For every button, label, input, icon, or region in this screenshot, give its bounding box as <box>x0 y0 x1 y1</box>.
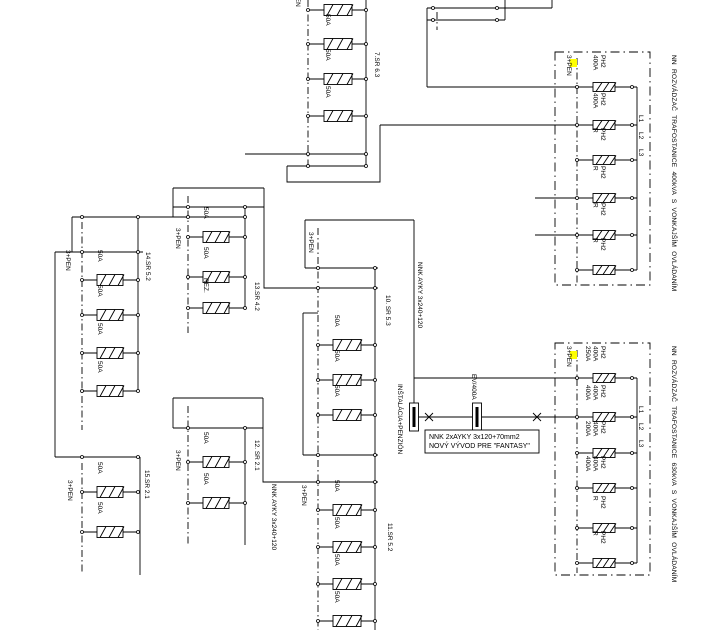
group-10sr-label: 10. SR 5.3 <box>384 295 391 326</box>
connection-node <box>576 416 579 419</box>
note-text: NNK 2xAYKY 3x120+70mm2 <box>429 434 520 441</box>
board-630kva-phase-label: L2 <box>637 423 644 431</box>
group-14sr-fuse-rating: 50A <box>96 285 103 297</box>
connection-node <box>432 19 435 22</box>
group-11sr-label: 11.SR 5.2 <box>386 523 393 552</box>
group-14sr-pen-label: 3+PEN <box>64 250 71 271</box>
connection-node <box>81 314 84 317</box>
group-10sr-pen-label: 3+PEN <box>307 232 314 253</box>
connection-node <box>317 379 320 382</box>
connection-node <box>317 267 320 270</box>
connection-node <box>244 216 247 219</box>
connection-node <box>187 427 190 430</box>
connection-node <box>317 583 320 586</box>
connection-node <box>187 307 190 310</box>
connection-node <box>365 165 368 168</box>
group-7sr-pen-label: 3+PEN <box>294 0 301 7</box>
connection-node <box>137 390 140 393</box>
connection-node <box>374 583 377 586</box>
group-10sr-fuse-rating: 50A <box>333 350 340 362</box>
connection-node <box>81 390 84 393</box>
connection-node <box>576 562 579 565</box>
connection-node <box>307 165 310 168</box>
cable-label-nnk-ayky-1: NNK AYKY 3x240+120 <box>416 262 423 328</box>
connection-node <box>317 414 320 417</box>
group-15sr-pen-label: 3+PEN <box>66 480 73 501</box>
connection-node <box>432 7 435 10</box>
connection-node <box>187 276 190 279</box>
note-text: NOVÝ VÝVOD PRE "FANTASY" <box>429 441 530 450</box>
connection-node <box>365 9 368 12</box>
group-14sr-fuse-rating: 50A <box>96 250 103 262</box>
connection-node <box>187 206 190 209</box>
connection-node <box>137 531 140 534</box>
connection-node <box>81 352 84 355</box>
board-630kva-phase-label: L3 <box>637 440 644 448</box>
connection-node <box>244 502 247 505</box>
group-12sr-fuse-rating: 50A <box>202 473 209 485</box>
connection-node <box>187 216 190 219</box>
connection-node <box>187 236 190 239</box>
connection-node <box>365 78 368 81</box>
board-400kva-phase-label: L3 <box>637 149 644 157</box>
group-7sr-label: 7.SR 6.3 <box>373 52 380 78</box>
connection-node <box>576 377 579 380</box>
group-14sr-label: 14.SR 5.2 <box>144 252 151 281</box>
connection-node <box>631 234 634 237</box>
group-13sr-fuse-rating: 50A <box>202 207 209 219</box>
connection-node <box>374 267 377 270</box>
connection-node <box>631 197 634 200</box>
connection-node <box>576 452 579 455</box>
group-13sr-fuse-rating: REZ. <box>202 278 209 293</box>
connection-node <box>244 276 247 279</box>
connection-node <box>81 216 84 219</box>
connection-node <box>374 287 377 290</box>
connection-node <box>576 86 579 89</box>
connection-node <box>576 269 579 272</box>
connection-node <box>307 9 310 12</box>
group-7sr-fuse-rating: 50A <box>324 49 331 61</box>
board-400kva-title: NN ROZVÁDZAČ TRAFOSTANICE 400kVA S VONKA… <box>670 55 679 291</box>
connection-node <box>137 216 140 219</box>
cable-label-nnk-ayky-2: NNK AYKY 3x240+120 <box>270 484 277 550</box>
connection-node <box>317 546 320 549</box>
connection-node <box>137 352 140 355</box>
electrical-single-line-diagram: NNK 2xAYKY 3x120+70mm2NOVÝ VÝVOD PRE "FA… <box>0 0 726 630</box>
group-15sr-fuse-rating: 50A <box>96 502 103 514</box>
connection-node <box>631 452 634 455</box>
connection-node <box>81 531 84 534</box>
board-630kva-phase-label: L1 <box>637 406 644 414</box>
connection-node <box>631 527 634 530</box>
connection-node <box>317 620 320 623</box>
connection-node <box>631 562 634 565</box>
connection-node <box>631 416 634 419</box>
board-400kva-phase-label: L2 <box>637 132 644 140</box>
connection-node <box>496 19 499 22</box>
connection-node <box>374 454 377 457</box>
connection-node <box>374 414 377 417</box>
connection-node <box>244 307 247 310</box>
connection-node <box>307 153 310 156</box>
connection-node <box>374 481 377 484</box>
board-400kva-phase-label: L1 <box>637 115 644 123</box>
board-630kva-pen-label: 3+PEN <box>565 346 572 367</box>
connection-node <box>307 115 310 118</box>
group-12sr-pen-label: 3+PEN <box>174 450 181 471</box>
connection-node <box>137 491 140 494</box>
connection-node <box>137 314 140 317</box>
group-11sr-fuse-rating: 50A <box>333 517 340 529</box>
group-13sr-fuse-rating: 50A <box>202 247 209 259</box>
connection-node <box>365 43 368 46</box>
connection-node <box>631 487 634 490</box>
connection-node <box>81 251 84 254</box>
group-12sr-label: 12. SR 2.1 <box>253 440 260 471</box>
connection-node <box>374 509 377 512</box>
connection-node <box>576 159 579 162</box>
group-15sr-label: 15.SR 2.1 <box>143 470 150 499</box>
schematic-page: NNK 2xAYKY 3x120+70mm2NOVÝ VÝVOD PRE "FA… <box>0 0 726 630</box>
group-15sr-fuse-rating: 50A <box>96 462 103 474</box>
connection-node <box>81 456 84 459</box>
connection-node <box>137 251 140 254</box>
connection-node <box>576 124 579 127</box>
connection-node <box>244 236 247 239</box>
group-11sr-pen-label: 3+PEN <box>300 485 307 506</box>
connection-node <box>187 502 190 505</box>
group-13sr-pen-label: 3+PEN <box>174 228 181 249</box>
connection-node <box>631 269 634 272</box>
connection-node <box>317 481 320 484</box>
cable-termination-instalacia-bar <box>413 407 416 427</box>
connection-node <box>307 78 310 81</box>
connection-node <box>365 153 368 156</box>
connection-node <box>244 206 247 209</box>
connection-node <box>307 43 310 46</box>
group-11sr-fuse-rating: 50A <box>333 591 340 603</box>
connection-node <box>631 159 634 162</box>
connection-node <box>576 487 579 490</box>
connection-node <box>576 527 579 530</box>
group-13sr-label: 13.SR 4.2 <box>253 282 260 311</box>
connection-node <box>317 344 320 347</box>
connection-node <box>317 454 320 457</box>
connection-node <box>374 344 377 347</box>
connection-node <box>137 456 140 459</box>
cable-termination-ev-bar <box>476 407 479 427</box>
connection-node <box>374 379 377 382</box>
connection-node <box>317 287 320 290</box>
board-400kva-pen-label: 3+PEN <box>565 55 572 76</box>
connection-node <box>137 279 140 282</box>
connection-node <box>496 7 499 10</box>
group-14sr-fuse-rating: 50A <box>96 323 103 335</box>
connection-node <box>576 234 579 237</box>
feeder-label-instalacia-penzion: INŠTALÁCIA+PENZIÓN <box>396 384 405 454</box>
group-10sr-fuse-rating: 50A <box>333 315 340 327</box>
connection-node <box>244 461 247 464</box>
group-12sr-fuse-rating: 50A <box>202 432 209 444</box>
board-630kva-title: NN ROZVÁDZAČ TRAFOSTANICE 630kVA S VONKA… <box>670 346 679 582</box>
connection-node <box>365 115 368 118</box>
connection-node <box>374 546 377 549</box>
connection-node <box>81 279 84 282</box>
connection-node <box>374 620 377 623</box>
group-7sr-fuse-rating: 50A <box>324 14 331 26</box>
group-7sr-fuse-rating: 50A <box>324 86 331 98</box>
connection-node <box>576 197 579 200</box>
group-11sr-fuse-rating: 50A <box>333 554 340 566</box>
connection-node <box>631 86 634 89</box>
connection-node <box>81 491 84 494</box>
group-10sr-fuse-rating: 50A <box>333 385 340 397</box>
connection-node <box>317 509 320 512</box>
connection-node <box>187 461 190 464</box>
connection-node <box>631 124 634 127</box>
group-11sr-fuse-rating: 50A <box>333 480 340 492</box>
connection-node <box>631 377 634 380</box>
group-14sr-fuse-rating: 50A <box>96 361 103 373</box>
connection-node <box>244 427 247 430</box>
device-label-ev-400a: EV/400A <box>470 374 477 400</box>
